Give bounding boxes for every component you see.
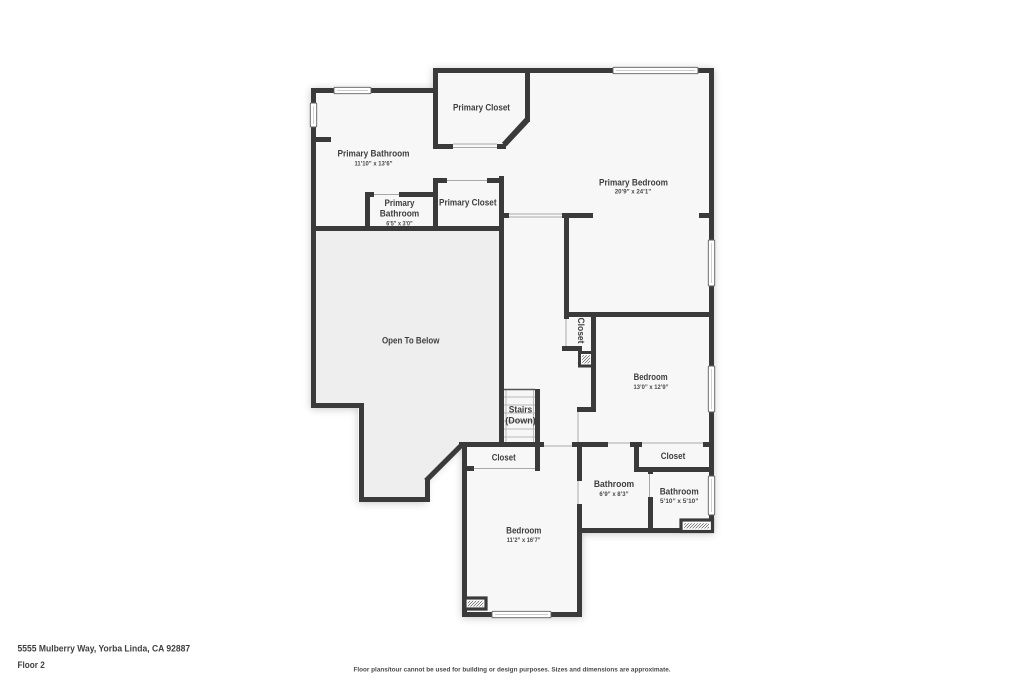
svg-text:Floor plans/tour cannot be use: Floor plans/tour cannot be used for buil… bbox=[354, 667, 671, 674]
svg-text:20’9” x 24’1”: 20’9” x 24’1” bbox=[615, 189, 652, 196]
svg-text:Bathroom: Bathroom bbox=[660, 487, 699, 498]
svg-text:Open To Below: Open To Below bbox=[382, 336, 440, 347]
svg-text:Bathroom: Bathroom bbox=[594, 479, 634, 490]
svg-text:Primary Bedroom: Primary Bedroom bbox=[599, 178, 668, 189]
svg-text:Closet: Closet bbox=[492, 453, 517, 464]
svg-text:Primary: Primary bbox=[385, 198, 416, 209]
svg-text:Closet: Closet bbox=[575, 318, 586, 345]
svg-text:6’5” x 3’0”: 6’5” x 3’0” bbox=[386, 221, 413, 228]
svg-text:11’10” x 13’6”: 11’10” x 13’6” bbox=[355, 161, 393, 168]
svg-text:11’2” x 16’7”: 11’2” x 16’7” bbox=[507, 537, 541, 544]
svg-text:Stairs: Stairs bbox=[509, 405, 533, 416]
svg-text:(Down): (Down) bbox=[505, 416, 536, 427]
svg-text:Floor 2: Floor 2 bbox=[18, 660, 45, 670]
svg-text:Closet: Closet bbox=[661, 451, 686, 462]
svg-text:Bathroom: Bathroom bbox=[380, 209, 420, 220]
svg-text:13’0” x 12’9”: 13’0” x 12’9” bbox=[634, 384, 669, 391]
svg-text:5’10” x 5’10”: 5’10” x 5’10” bbox=[660, 498, 698, 505]
svg-text:Primary Bathroom: Primary Bathroom bbox=[338, 149, 410, 160]
svg-text:Bedroom: Bedroom bbox=[634, 372, 668, 383]
svg-text:5555 Mulberry Way, Yorba Linda: 5555 Mulberry Way, Yorba Linda, CA 92887 bbox=[18, 644, 191, 654]
svg-text:Primary Closet: Primary Closet bbox=[453, 103, 511, 114]
svg-text:6’9” x 8’3”: 6’9” x 8’3” bbox=[599, 491, 628, 498]
svg-text:Primary Closet: Primary Closet bbox=[439, 198, 497, 209]
svg-text:Bedroom: Bedroom bbox=[506, 526, 541, 537]
